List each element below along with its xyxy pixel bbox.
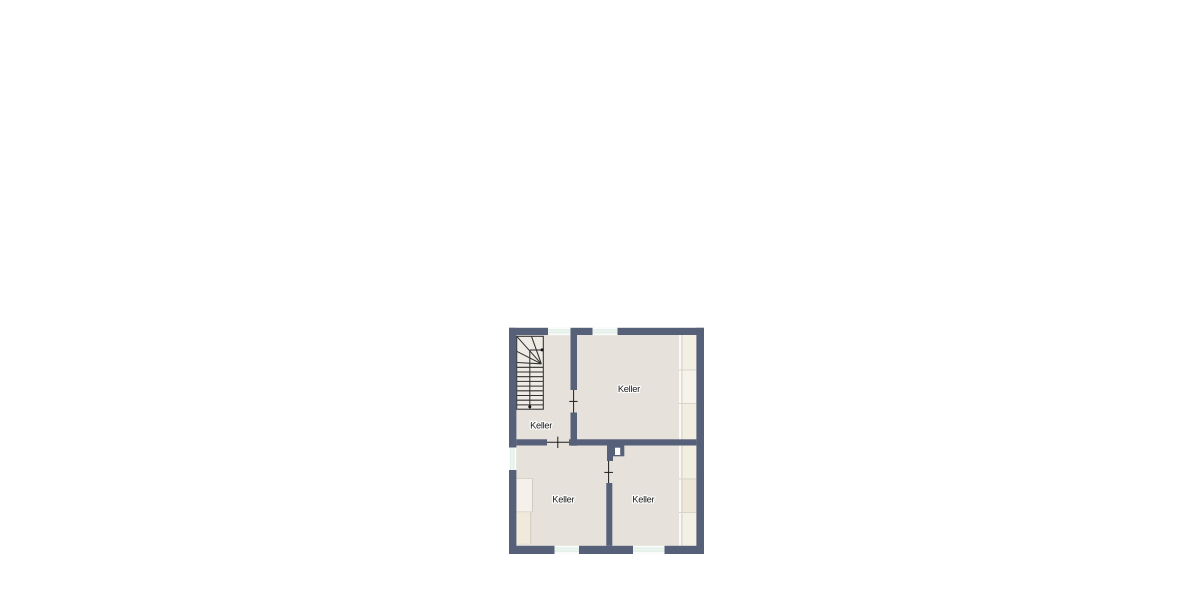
svg-text:Keller: Keller (552, 495, 574, 505)
svg-text:Keller: Keller (632, 495, 654, 505)
svg-text:Keller: Keller (618, 384, 640, 394)
svg-text:Keller: Keller (530, 421, 552, 431)
